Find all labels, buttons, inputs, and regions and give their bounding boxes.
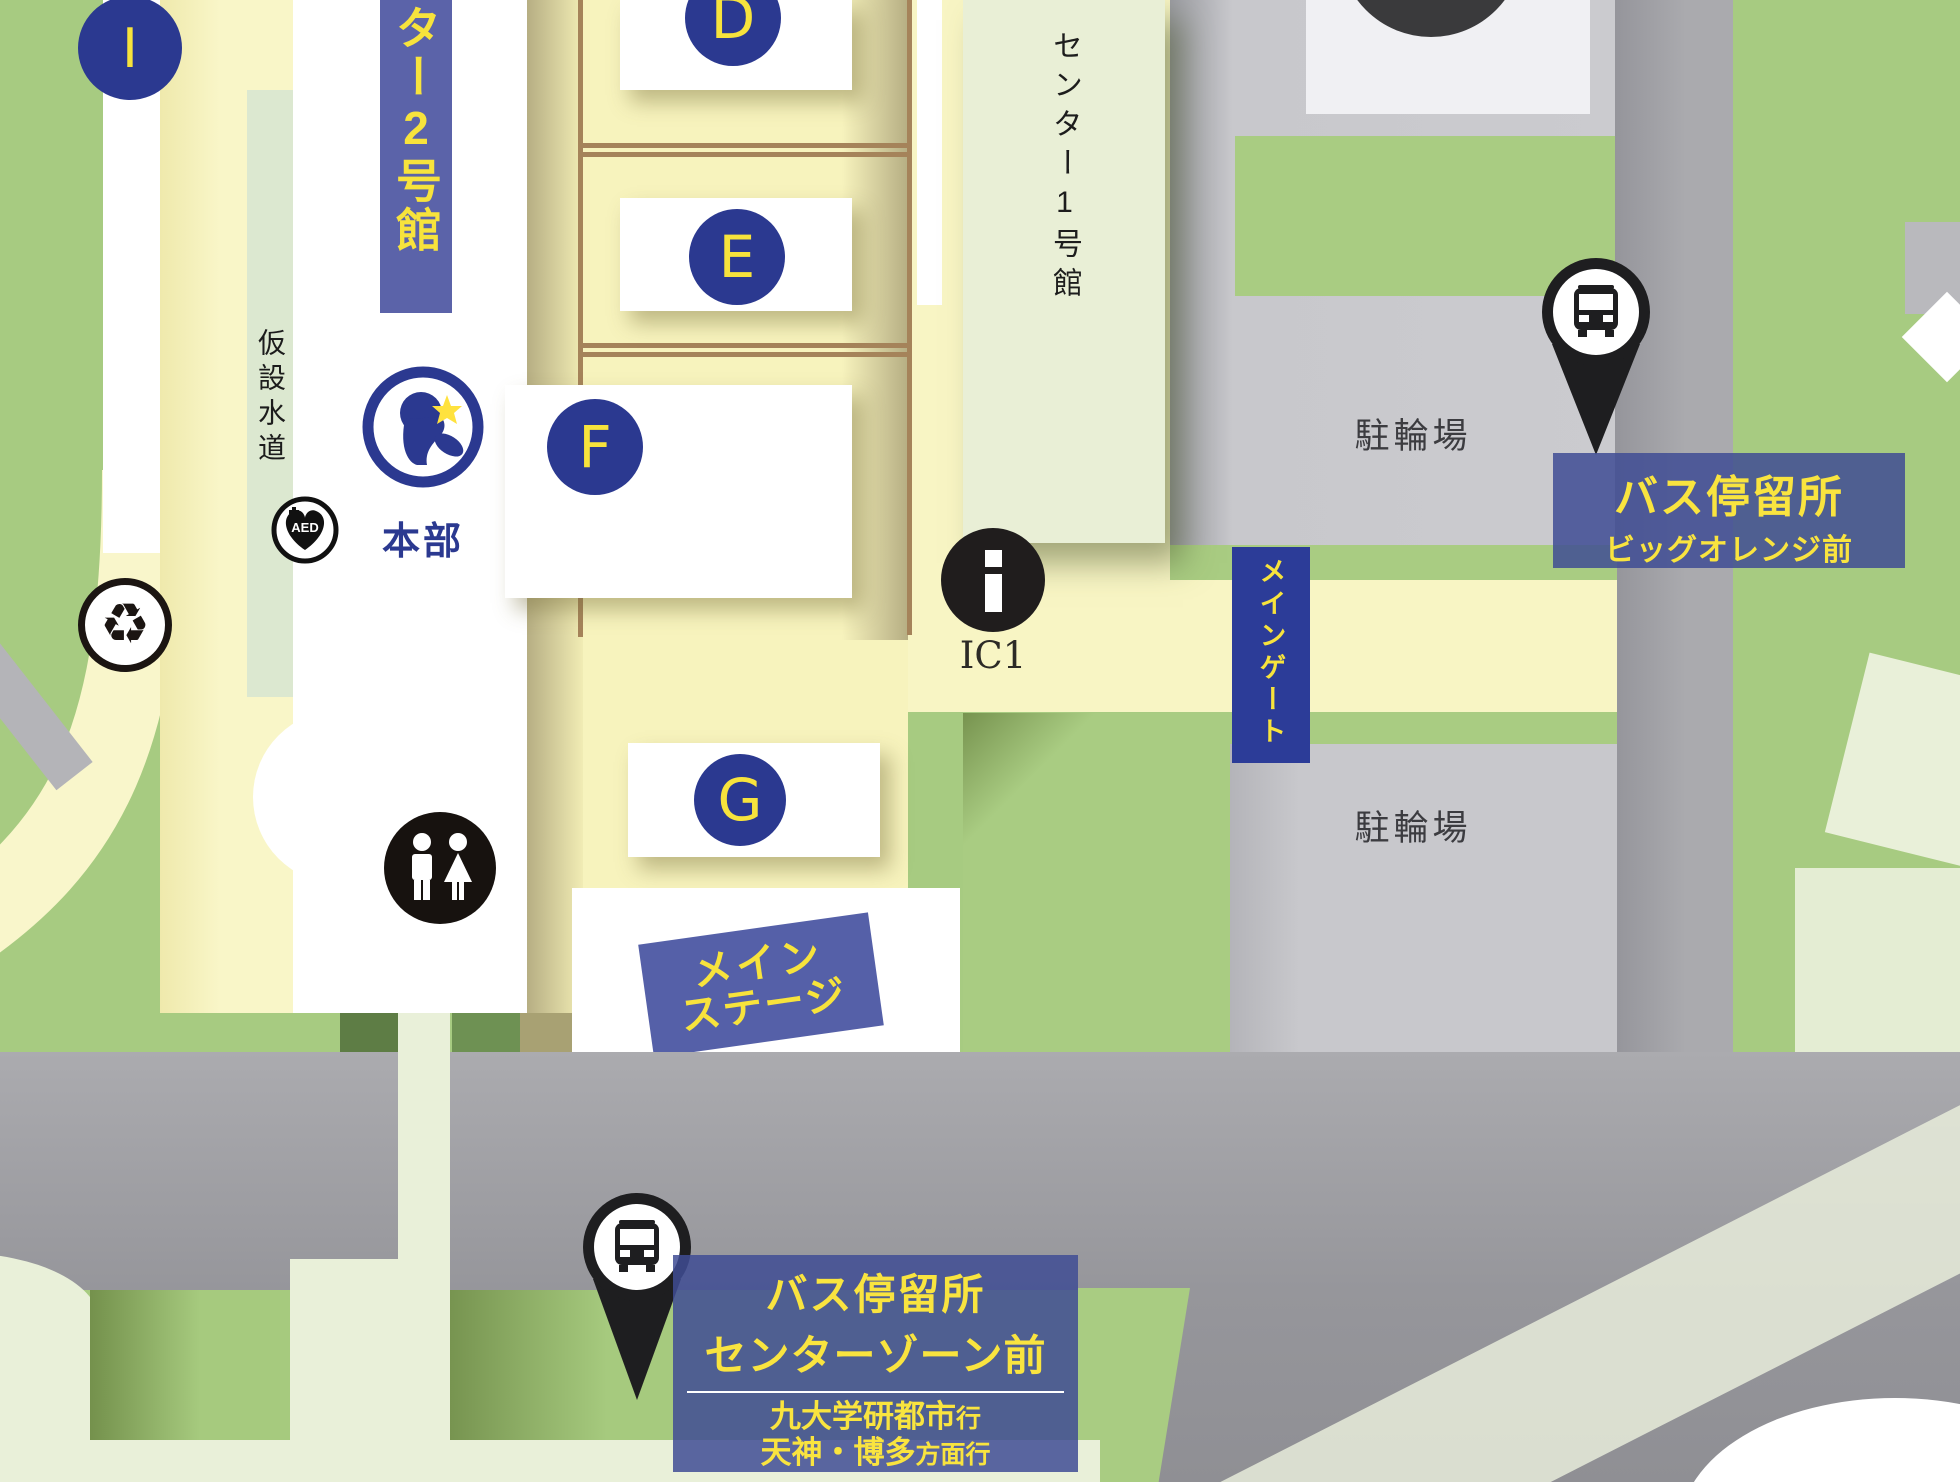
main-gate-banner: メインゲート bbox=[1232, 547, 1310, 763]
booth-divider-1b bbox=[583, 152, 912, 157]
label-divider bbox=[687, 1391, 1064, 1393]
zone-marker-i: I bbox=[78, 0, 182, 100]
bus-route-suffix: 方面行 bbox=[915, 1441, 990, 1469]
bicycle-parking-label-north: 駐輪場 bbox=[1303, 408, 1523, 459]
parking-area-south bbox=[1230, 744, 1617, 1052]
bus-stop-title: バス停留所 bbox=[673, 1261, 1078, 1322]
aed-icon: AED bbox=[271, 496, 339, 564]
lawn-olive bbox=[520, 1013, 572, 1052]
lawn-dark-a bbox=[340, 1013, 398, 1052]
campus-festival-map: 駐輪場 駐輪場 センター1号館 IC1 メインゲート 仮設水道 ター2号館 I bbox=[0, 0, 1960, 1482]
bus-route-1: 九大学研都市行 bbox=[673, 1399, 1078, 1435]
zone-marker-e: E bbox=[689, 209, 785, 305]
booth-divider-2a bbox=[583, 343, 912, 348]
booth-border-right bbox=[907, 0, 912, 635]
hq-label: 本部 bbox=[350, 510, 496, 565]
lawn-dark-b bbox=[452, 1013, 520, 1052]
bus-icon bbox=[1574, 285, 1618, 337]
bicycle-parking-label-south: 駐輪場 bbox=[1303, 800, 1523, 851]
pale-field-east bbox=[1795, 868, 1960, 1052]
mascot-icon bbox=[361, 365, 485, 489]
center-building-2-banner: ター2号館 bbox=[380, 0, 452, 313]
zone-marker-f: F bbox=[547, 399, 643, 495]
main-gate-label: メインゲート bbox=[1252, 557, 1291, 749]
temp-water-label: 仮設水道 bbox=[250, 328, 290, 468]
bus-route-main: 天神・博多 bbox=[760, 1435, 915, 1470]
information-icon bbox=[941, 528, 1045, 632]
temp-water-strip: 仮設水道 bbox=[247, 90, 293, 697]
restroom-icon bbox=[384, 812, 496, 924]
white-strip-plaza bbox=[917, 0, 942, 305]
ic1-label: IC1 bbox=[941, 634, 1045, 677]
bus-stop-subtitle: ビッグオレンジ前 bbox=[1553, 525, 1905, 569]
bus-stop-title: バス停留所 bbox=[1553, 461, 1905, 525]
bus-route-suffix: 行 bbox=[956, 1405, 981, 1433]
booth-divider-2b bbox=[583, 352, 912, 357]
bus-route-2: 天神・博多方面行 bbox=[673, 1435, 1078, 1471]
bus-stop-label-big-orange: バス停留所 ビッグオレンジ前 bbox=[1553, 453, 1905, 568]
pale-crossing-path bbox=[398, 1013, 450, 1482]
recycle-icon-west: ♻ bbox=[78, 578, 172, 672]
lawn-center-south bbox=[963, 713, 1230, 1052]
booth-divider-1a bbox=[583, 143, 912, 148]
zone-marker-g: G bbox=[694, 754, 786, 846]
aed-label: AED bbox=[291, 520, 318, 535]
bus-stop-label-center-zone: バス停留所 センターゾーン前 九大学研都市行 天神・博多方面行 bbox=[673, 1255, 1078, 1472]
center-building-1-label: センター1号館 bbox=[1042, 30, 1086, 306]
bus-route-main: 九大学研都市 bbox=[770, 1399, 956, 1434]
lawn-block-south-a bbox=[90, 1290, 290, 1440]
recycle-symbol: ♻ bbox=[100, 597, 150, 653]
center-building-2-label: ター2号館 bbox=[383, 4, 449, 255]
center-building-1: センター1号館 bbox=[963, 0, 1165, 543]
bus-stop-subtitle: センターゾーン前 bbox=[673, 1322, 1078, 1383]
bus-icon bbox=[615, 1220, 659, 1272]
bus-stop-pin-big-orange bbox=[1540, 258, 1652, 458]
pale-building-east bbox=[1825, 653, 1960, 869]
